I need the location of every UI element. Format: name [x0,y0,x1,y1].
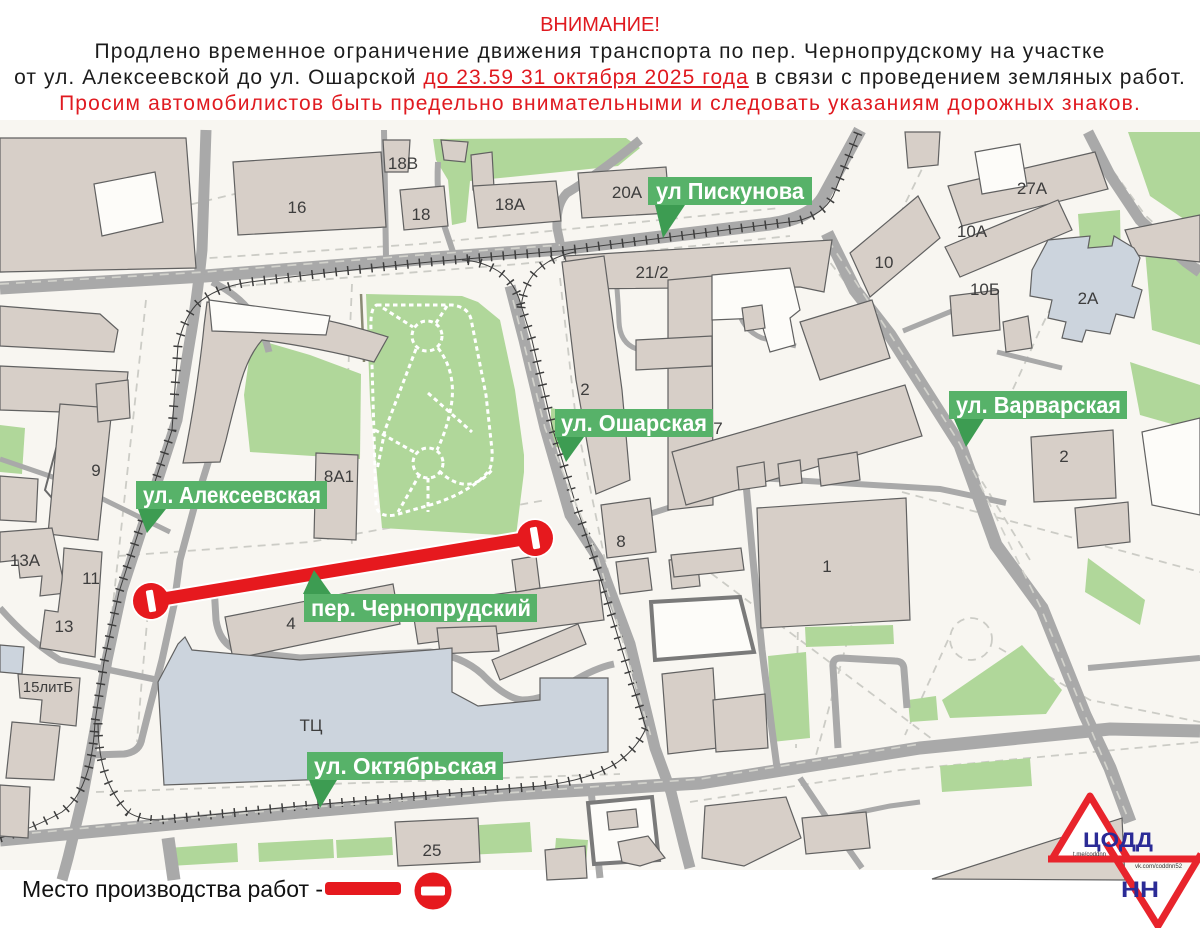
svg-text:8: 8 [616,532,625,551]
svg-text:7: 7 [713,419,722,438]
svg-text:25: 25 [423,841,442,860]
svg-text:2А: 2А [1078,289,1099,308]
svg-text:ул. Варварская: ул. Варварская [956,392,1121,418]
svg-text:8А1: 8А1 [324,467,354,486]
svg-text:t.me/coddnn: t.me/coddnn [1073,852,1106,858]
svg-text:2: 2 [1059,447,1068,466]
svg-text:ул. Алексеевская: ул. Алексеевская [143,482,321,508]
svg-text:vk.com/coddnn52: vk.com/coddnn52 [1135,864,1183,870]
svg-text:9: 9 [91,461,100,480]
svg-text:20А: 20А [612,183,643,202]
svg-text:ТЦ: ТЦ [300,716,323,735]
svg-text:ул Пискунова: ул Пискунова [656,178,804,204]
svg-text:2: 2 [580,380,589,399]
svg-text:10Б: 10Б [970,280,1000,299]
svg-text:13А: 13А [10,551,41,570]
svg-text:21/2: 21/2 [635,263,668,282]
svg-text:НН: НН [1121,877,1159,902]
svg-text:18: 18 [412,205,431,224]
svg-text:11: 11 [82,569,100,588]
svg-text:ул. Ошарская: ул. Ошарская [561,410,707,436]
svg-text:18В: 18В [388,154,418,173]
svg-text:10А: 10А [957,222,988,241]
svg-text:ЦОДД: ЦОДД [1083,829,1153,852]
svg-text:10: 10 [875,253,894,272]
svg-text:пер. Чернопрудский: пер. Чернопрудский [311,595,531,621]
svg-text:4: 4 [286,614,295,633]
svg-text:16: 16 [288,198,307,217]
svg-text:1: 1 [822,557,831,576]
svg-text:18А: 18А [495,195,526,214]
svg-text:15литБ: 15литБ [23,679,74,696]
svg-text:27А: 27А [1017,179,1048,198]
svg-text:13: 13 [55,617,74,636]
svg-text:ул. Октябрьская: ул. Октябрьская [314,753,497,779]
